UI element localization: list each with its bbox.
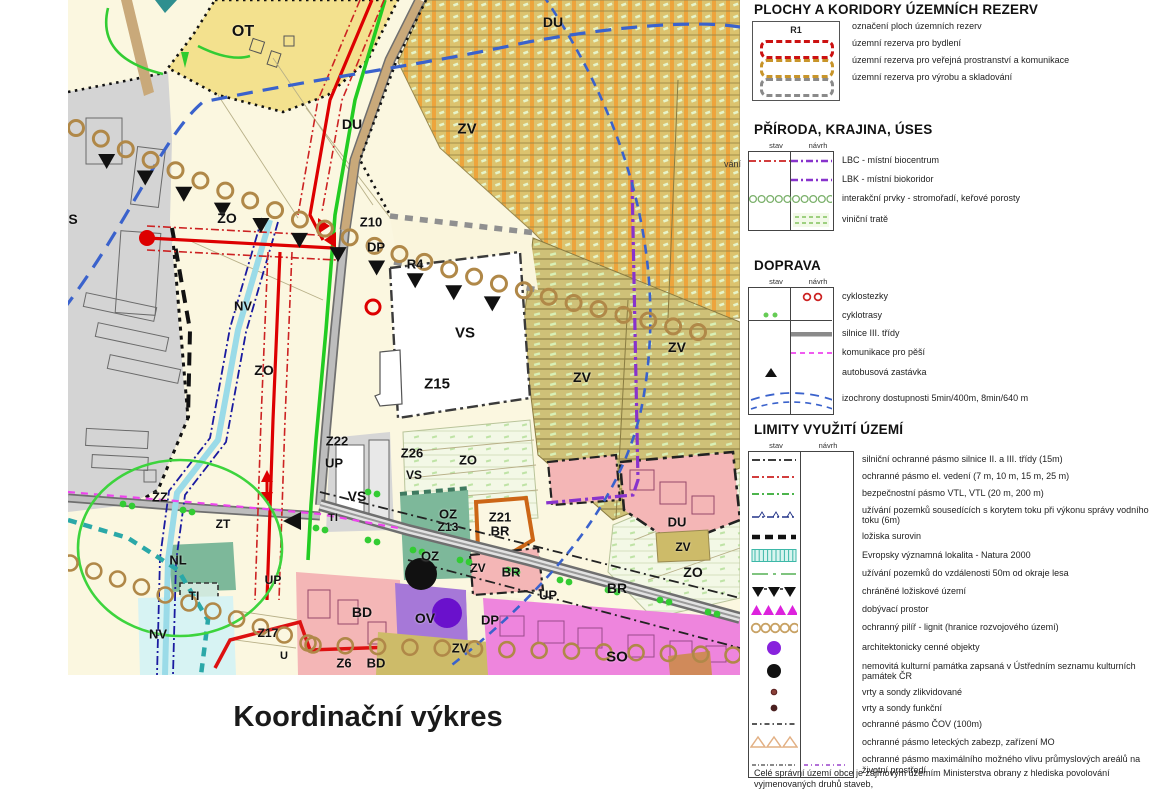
legend-item: silnice III. třídy [748,324,1160,343]
legend-item-label: územní rezerva pro veřejná prostranství … [852,55,1160,66]
reserve-production-icon [760,78,834,97]
legend-item-label: označení ploch územních rezerv [852,21,1160,32]
zone-label-up: UP [265,573,282,587]
zone-label-zv: ZV [573,369,591,385]
legend-item-label: LBK - místní biokoridor [842,174,1142,185]
coordination-drawing-page: { "title": "Koordinační výkres", "map": … [0,0,1162,800]
legend-item-label: vrty a sondy zlikvidované [862,687,1160,698]
legend-table: LBC - místní biocentrum LBK - místní bio… [748,151,1160,231]
legend-item: nemovitá kulturní památka zapsaná v Ústř… [748,658,1160,684]
legend-item-label: viniční tratě [842,214,1142,225]
legend-item-label: LBC - místní biocentrum [842,155,1142,166]
zone-label-zv: ZV [457,121,476,138]
zone-label-vs: VS [406,468,422,482]
zone-label-zz: ZZ [152,490,168,505]
reserve-housing-icon [760,40,834,59]
zone-label-br: BR [491,524,510,539]
zone-label-vs: VS [348,488,367,504]
column-header-stav: stav [750,441,802,450]
legend-item-label: cyklostezky [842,291,1142,302]
legend-item-label: Evropsky významná lokalita - Natura 2000 [862,550,1160,561]
legend-item-label: ochranné pásmo ČOV (100m) [862,719,1160,730]
legend-item-label: bezpečnostní pásmo VTL, VTL (20 m, 200 m… [862,488,1160,499]
zone-label-zv: ZV [668,339,686,355]
zone-label-up: UP [325,456,343,471]
page-title: Koordinační výkres [178,701,558,734]
legend-section-title: LIMITY VYUŽITÍ ÚZEMÍ [754,422,1160,437]
legend-item: ložiska surovin [748,528,1160,545]
zone-label-dp: DP [481,613,499,628]
legend-item: autobusová zastávka [748,362,1160,382]
legend-item-label: silniční ochranné pásmo silnice II. a II… [862,454,1160,465]
legend-item: bezpečnostní pásmo VTL, VTL (20 m, 200 m… [748,485,1160,502]
legend-item-label: ochranné pásmo el. vedení (7 m, 10 m, 15… [862,471,1160,482]
zone-label-so: SO [606,649,628,666]
legend-section-priroda: PŘÍRODA, KRAJINA, ÚSES stav návrh LBC - … [748,122,1160,231]
zone-label-bd: BD [352,604,372,620]
zone-label-du: DU [668,515,687,530]
legend-table: silniční ochranné pásmo silnice II. a II… [748,451,1160,778]
zone-label-up: UP [539,588,557,603]
legend-section-title: DOPRAVA [754,258,1160,273]
legend-item: cyklotrasy [748,306,1160,324]
zone-label-u: U [280,650,288,662]
zone-label-nl: NL [169,553,186,568]
zone-label-dp: DP [367,240,385,255]
zone-label-bd: BD [367,656,386,671]
legend-item: komunikace pro pěší [748,343,1160,362]
legend-item: izochrony dostupnosti 5min/400m, 8min/64… [748,382,1160,415]
zone-label-z17: Z17 [258,626,279,640]
legend-item-label: dobývací prostor [862,604,1160,615]
legend-item: užívání pozemků sousedících s korytem to… [748,502,1160,528]
legend-item: silniční ochranné pásmo silnice II. a II… [748,451,1160,468]
zone-label-z21: Z21 [489,510,511,525]
legend-item-label: ochranný pilíř - lignit (hranice rozvojo… [862,622,1160,633]
column-header-navrh: návrh [792,141,844,150]
legend-item-label: architektonicky cenné objekty [862,642,1160,653]
map-canvas [68,0,740,675]
legend-item: viniční tratě [748,208,1160,231]
legend-item: ochranný pilíř - lignit (hranice rozvojo… [748,618,1160,637]
zone-label-nv: NV [149,627,167,642]
reserve-symbol-box: R1 [752,21,840,101]
legend-section-doprava: DOPRAVA stav návrh cyklostezky cyklotras… [748,258,1160,415]
zone-label-zv: ZV [452,641,469,656]
legend-item-label: komunikace pro pěší [842,347,1142,358]
zone-label-zv: ZV [470,561,485,575]
legend-section-limity: LIMITY VYUŽITÍ ÚZEMÍ stav návrh silniční… [748,422,1160,778]
column-header-navrh: návrh [802,441,854,450]
legend-item: LBK - místní biokoridor [748,170,1160,189]
legend-item-label: územní rezerva pro bydlení [852,38,1160,49]
zone-label-zo: ZO [459,453,477,468]
legend-footer-note: Celé správní území obce je zájmovým územ… [754,768,1154,790]
reserve-public-icon [760,59,834,78]
zone-label-z13: Z13 [438,520,459,534]
zone-label-z15: Z15 [424,376,450,393]
zone-label-ti: TI [328,512,338,524]
legend-section-title: PLOCHY A KORIDORY ÚZEMNÍCH REZERV [754,2,1160,17]
reserve-id-label: R1 [753,25,839,35]
legend-item-label: interakční prvky - stromořadí, keřové po… [842,193,1142,204]
legend-item-label: cyklotrasy [842,310,1142,321]
zone-label-z6: Z6 [336,656,351,671]
zone-label-zo: ZO [683,564,702,580]
zone-label-oz: OZ [421,549,439,564]
legend-item-label: izochrony dostupnosti 5min/400m, 8min/64… [842,393,1142,404]
legend-item-label: užívání pozemků sousedících s korytem to… [862,505,1160,526]
zone-label-zo: ZO [217,210,236,226]
zone-label-br: BR [607,580,627,596]
zone-label-zv: ZV [675,540,690,554]
legend-item-label: územní rezerva pro výrobu a skladování [852,72,1160,83]
zone-label-ot: OT [232,23,254,41]
clipped-map-label: vání [724,159,741,169]
zone-label-s: S [68,211,77,227]
zone-label-du: DU [342,116,362,132]
legend-item-label: vrty a sondy funkční [862,703,1160,714]
zone-label-vs: VS [455,325,475,342]
legend-section-rezervy: PLOCHY A KORIDORY ÚZEMNÍCH REZERV R1 ozn… [748,2,1160,103]
legend-item: vrty a sondy zlikvidované [748,684,1160,700]
legend-item-label: ložiska surovin [862,531,1160,542]
legend-section-title: PŘÍRODA, KRAJINA, ÚSES [754,122,1160,137]
zoning-map: OTDUZVDUZ10DPR4VSZ15ZOSNVZOZZZTNLTINVZ22… [68,0,740,675]
legend-item: ochranné pásmo ČOV (100m) [748,716,1160,733]
legend-item: chráněné ložiskové území [748,582,1160,600]
legend-item: vrty a sondy funkční [748,700,1160,716]
zone-label-br: BR [502,565,521,580]
rezervy-body: R1 označení ploch územních rezervúzemní … [748,21,1160,103]
zone-label-du: DU [543,14,563,30]
legend-item-label: ochranné pásmo leteckých zabezp, zařízen… [862,737,1160,748]
legend-item: cyklostezky [748,287,1160,306]
column-header-navrh: návrh [792,277,844,286]
zone-label-z10: Z10 [360,215,382,230]
legend-item: interakční prvky - stromořadí, keřové po… [748,189,1160,208]
legend-item-label: nemovitá kulturní památka zapsaná v Ústř… [862,661,1160,682]
zone-label-ti: TI [189,589,200,603]
zone-label-nv: NV [234,299,252,314]
legend-item-label: autobusová zastávka [842,367,1142,378]
legend-table: cyklostezky cyklotrasy silnice III. tříd… [748,287,1160,415]
zone-label-z26: Z26 [401,446,423,461]
zone-label-zo: ZO [254,362,273,378]
legend-item: Evropsky významná lokalita - Natura 2000 [748,545,1160,565]
legend-item: ochranné pásmo el. vedení (7 m, 10 m, 15… [748,468,1160,485]
zone-label-r4: R4 [407,257,424,272]
zone-label-z22: Z22 [326,434,348,449]
legend-item-label: užívání pozemků do vzdálenosti 50m od ok… [862,568,1160,579]
legend-item: užívání pozemků do vzdálenosti 50m od ok… [748,565,1160,582]
zone-label-ov: OV [415,610,435,626]
zone-label-zt: ZT [216,517,231,531]
legend-item: ochranné pásmo leteckých zabezp, zařízen… [748,733,1160,752]
legend-item-label: silnice III. třídy [842,328,1142,339]
architectural-object-dot [432,598,462,628]
legend-item: architektonicky cenné objekty [748,637,1160,658]
legend-item: dobývací prostor [748,600,1160,618]
legend-item-label: chráněné ložiskové území [862,586,1160,597]
legend-item: LBC - místní biocentrum [748,151,1160,170]
